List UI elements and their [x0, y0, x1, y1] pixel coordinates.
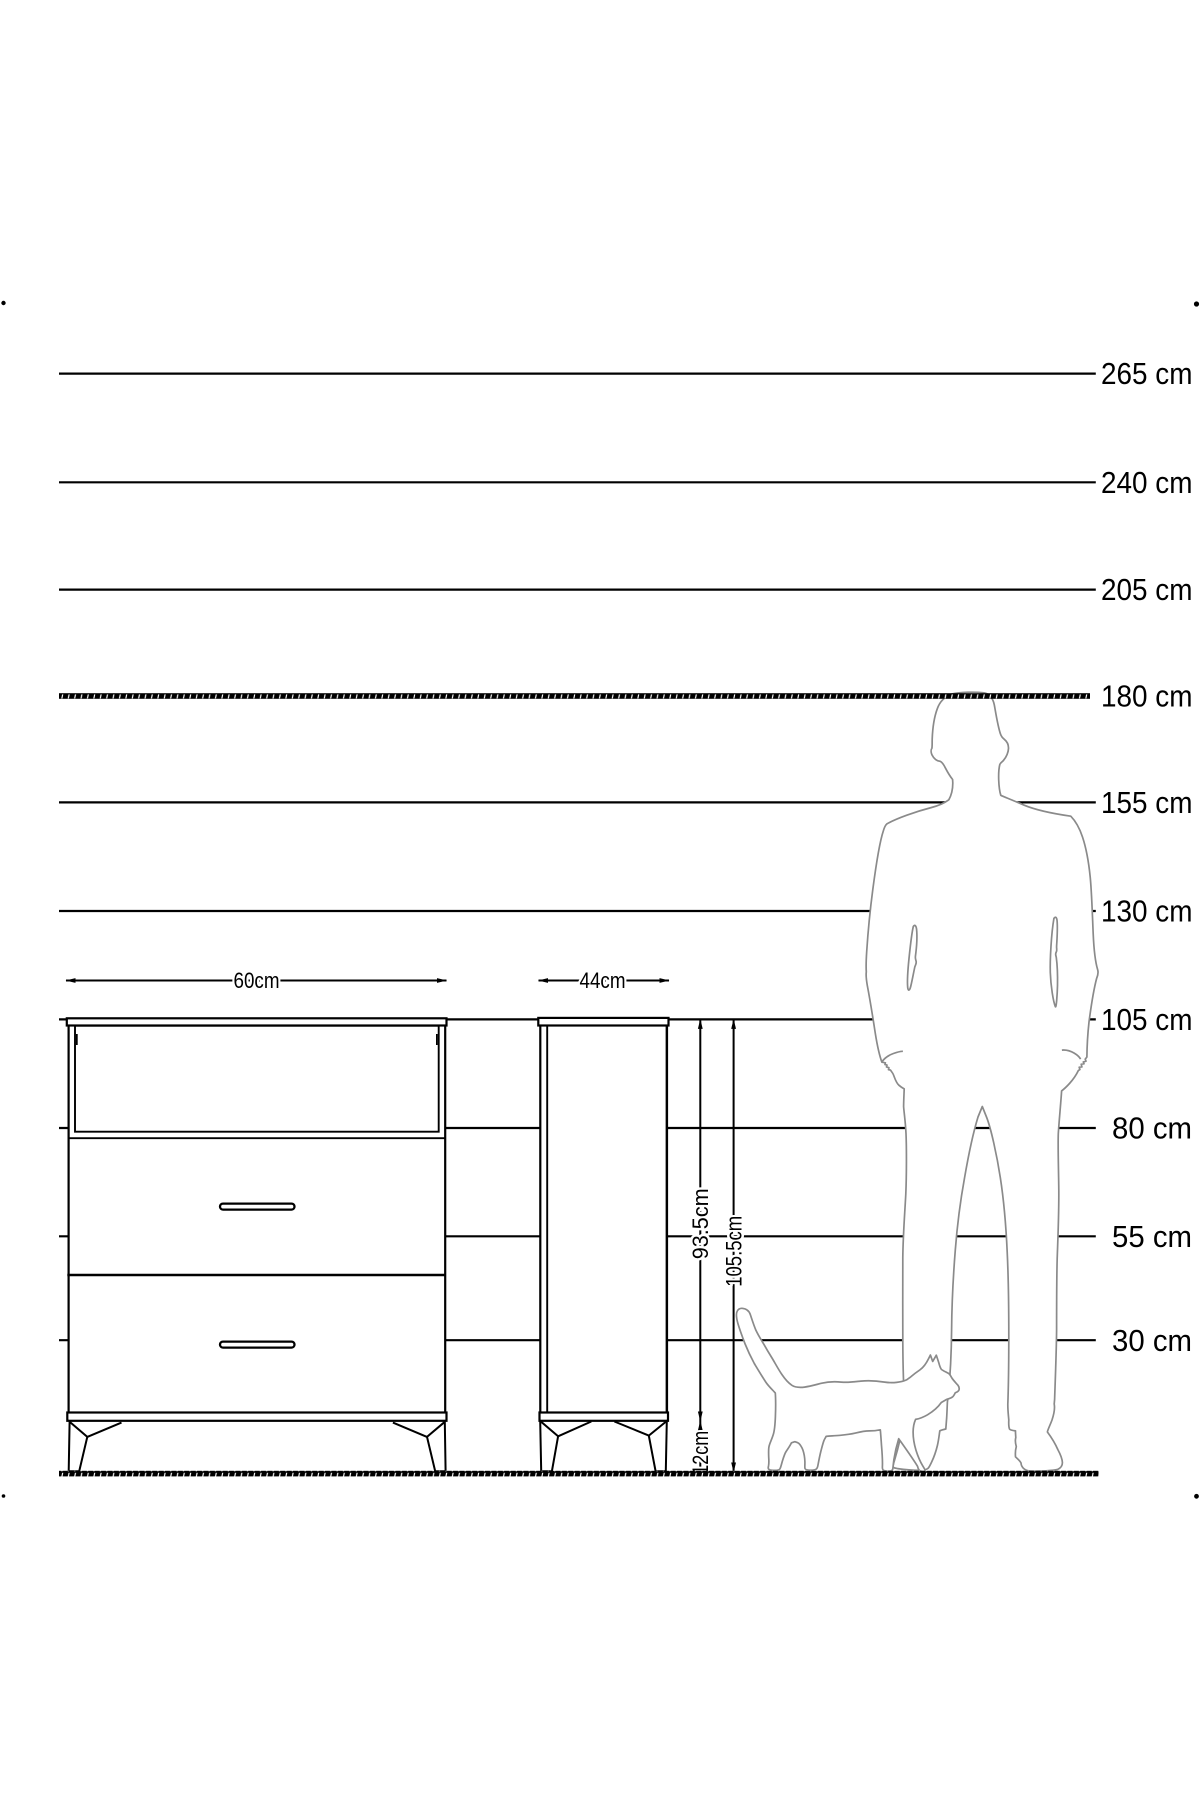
svg-text:93.5cm: 93.5cm: [688, 1188, 713, 1259]
svg-text:240 cm: 240 cm: [1101, 466, 1193, 500]
svg-text:55 cm: 55 cm: [1112, 1220, 1192, 1254]
svg-text:12cm: 12cm: [688, 1431, 713, 1475]
svg-text:155 cm: 155 cm: [1101, 786, 1193, 820]
svg-text:30 cm: 30 cm: [1112, 1324, 1192, 1358]
svg-text:180 cm: 180 cm: [1101, 680, 1193, 714]
svg-text:205 cm: 205 cm: [1101, 573, 1193, 607]
svg-text:44cm: 44cm: [580, 968, 626, 993]
svg-text:105 cm: 105 cm: [1101, 1003, 1193, 1037]
svg-text:130 cm: 130 cm: [1101, 895, 1193, 929]
svg-text:60cm: 60cm: [234, 968, 280, 993]
svg-text:105.5cm: 105.5cm: [721, 1216, 746, 1287]
svg-text:80 cm: 80 cm: [1112, 1112, 1192, 1146]
svg-text:265 cm: 265 cm: [1101, 357, 1193, 391]
